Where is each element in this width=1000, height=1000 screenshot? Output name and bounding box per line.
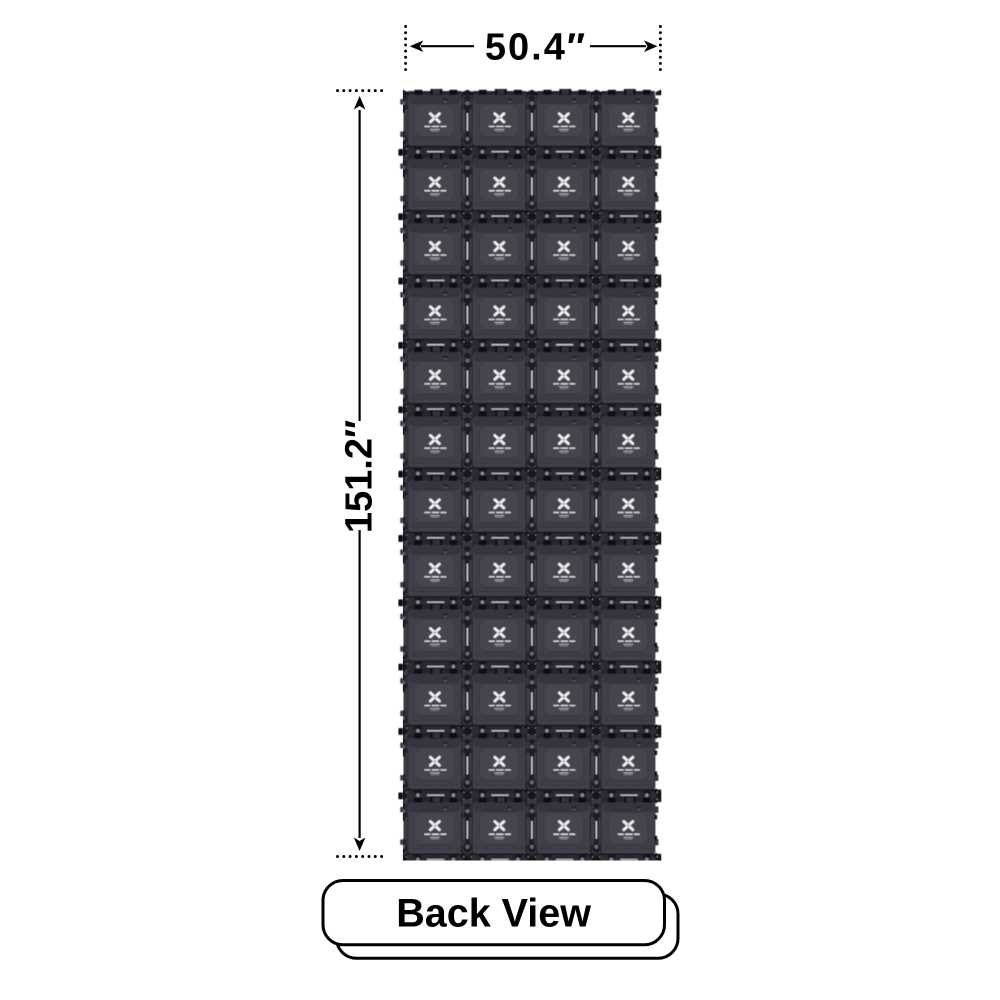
svg-text:50.4″: 50.4″	[485, 27, 587, 69]
svg-text:151.2″: 151.2″	[339, 420, 381, 533]
svg-text:Back View: Back View	[396, 892, 591, 936]
